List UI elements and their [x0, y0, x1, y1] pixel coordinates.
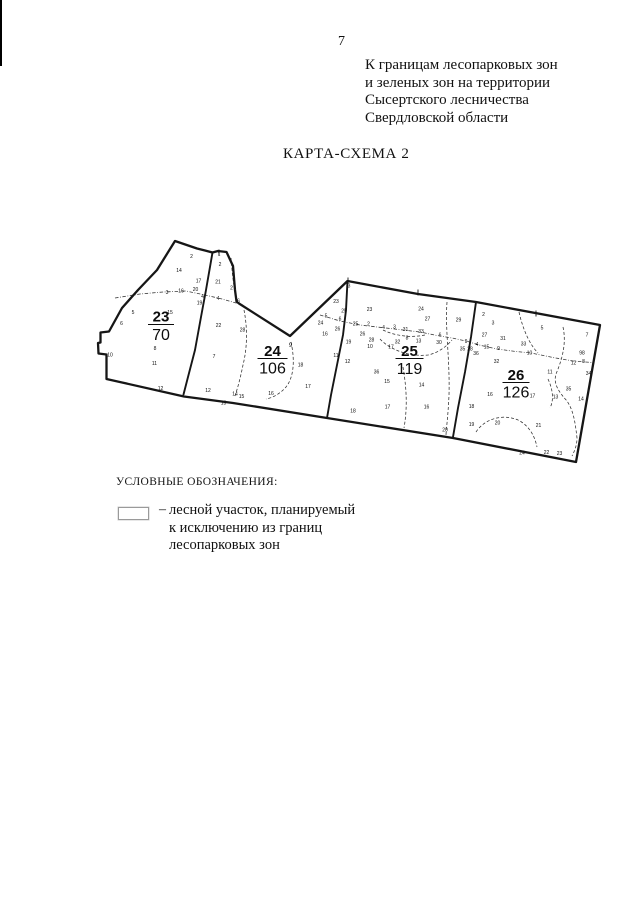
legend-dash: –: [159, 502, 166, 518]
parcel-number: 5: [325, 313, 328, 319]
parcel-number: 4: [201, 294, 204, 300]
parcel-number: 21: [536, 423, 542, 429]
parcel-number: 17: [196, 278, 202, 284]
parcel-number: 11: [547, 369, 552, 375]
parcel-number: 20: [495, 420, 501, 426]
parcel-number: 16: [487, 392, 493, 398]
parcel-number: 15: [384, 379, 390, 385]
parcel-number: 10: [367, 344, 373, 350]
parcel-number: 35: [460, 346, 466, 352]
parcel-number: 36: [473, 351, 479, 357]
parcel-number: 19: [197, 300, 203, 306]
parcel-number: 33: [418, 329, 424, 335]
parcel-dashed-line: [476, 417, 537, 447]
quarter-number-label: 25: [401, 343, 418, 360]
parcel-number: 8: [582, 359, 585, 365]
legend: УСЛОВНЫЕ ОБОЗНАЧЕНИЯ: – лесной участок, …: [116, 476, 416, 488]
parcel-number: 18: [469, 404, 475, 410]
parcel-number: 1: [218, 252, 221, 258]
quarter-number-label: 23: [153, 309, 170, 326]
parcel-number: 14: [232, 391, 238, 397]
parcel-number: 20: [442, 427, 448, 433]
parcel-number: 27: [425, 316, 431, 322]
parcel-number: 16: [178, 288, 184, 294]
parcel-number: 24: [418, 306, 424, 312]
map-scheme-figure: 2141731620155681011121221241946222871213…: [0, 0, 640, 905]
parcel-number: 13: [553, 394, 559, 400]
parcel-number: 16: [268, 391, 274, 397]
parcel-number: 28: [240, 327, 246, 333]
parcel-number: 7: [586, 332, 589, 338]
parcel-number: 32: [395, 339, 401, 345]
parcel-number: 35: [566, 386, 572, 392]
parcel-number: 5: [541, 325, 544, 331]
parcel-number: 4: [476, 342, 479, 348]
parcel-number: 23: [367, 307, 373, 313]
text-line: лесопарковых зон: [169, 537, 409, 555]
parcel-number: 6: [120, 321, 123, 327]
parcel-number: 13: [221, 400, 227, 406]
parcel-number: 12: [158, 386, 164, 392]
parcel-number: 2: [219, 262, 222, 268]
parcel-number: 2: [367, 321, 370, 327]
parcel-number: 31: [403, 327, 409, 333]
quarter-number-label: 24: [264, 343, 281, 360]
text-line: к исключению из границ: [169, 520, 409, 538]
parcel-number: 31: [500, 336, 506, 342]
parcel-number: 17: [385, 404, 391, 410]
parcel-number: 27: [482, 332, 488, 338]
parcel-number: 7: [213, 354, 216, 360]
parcel-number: 32: [494, 359, 500, 365]
quarter-boundary-line: [184, 253, 213, 395]
parcel-number: 12: [571, 360, 577, 366]
parcel-number: 8: [406, 335, 409, 341]
parcel-number: 98: [579, 350, 585, 356]
excluded-parcel-swatch: [118, 507, 149, 520]
parcel-number: 18: [298, 362, 304, 368]
parcel-number: 16: [424, 404, 430, 410]
quarter-number-label: 26: [508, 367, 525, 384]
parcel-number: 26: [360, 331, 366, 337]
parcel-number: 3: [492, 320, 495, 326]
parcel-number: 19: [346, 339, 352, 345]
quarter-area-label: 106: [259, 361, 286, 378]
parcel-number: 2: [230, 285, 233, 291]
parcel-number: 23: [333, 299, 339, 305]
parcel-number: 3: [166, 290, 169, 296]
parcel-number: 10: [527, 350, 533, 356]
parcel-number: 17: [388, 344, 394, 350]
parcel-number: 16: [322, 331, 328, 337]
parcel-dashed-line: [446, 302, 449, 436]
parcel-number: 24: [519, 450, 525, 456]
parcel-number: 11: [152, 361, 157, 367]
parcel-number: 26: [335, 326, 341, 332]
parcel-number: 33: [521, 341, 527, 347]
parcel-number: 6: [237, 298, 240, 304]
map-outline: [98, 241, 600, 462]
document-page: 7 К границам лесопарковых зони зеленых з…: [0, 0, 640, 905]
parcel-number: 25: [353, 321, 359, 327]
parcel-number: 24: [318, 320, 324, 326]
parcel-number: 14: [419, 382, 425, 388]
parcel-number: 23: [557, 451, 563, 457]
parcel-number: 19: [469, 422, 475, 428]
parcel-number: 4: [382, 325, 385, 331]
parcel-number: 8: [154, 346, 157, 352]
parcel-number: 15: [484, 344, 490, 350]
parcel-number: 29: [456, 317, 462, 323]
quarter-area-label: 119: [397, 361, 423, 378]
parcel-number: 17: [305, 384, 311, 390]
parcel-number: 20: [193, 287, 199, 293]
parcel-number: 6: [339, 316, 342, 322]
parcel-number: 22: [544, 450, 550, 456]
parcel-number: 22: [216, 323, 222, 329]
parcel-number: 36: [374, 369, 380, 375]
parcel-dashed-line: [235, 310, 247, 396]
parcel-number: 21: [215, 279, 221, 285]
parcel-number: 2: [190, 254, 193, 260]
parcel-number: 5: [132, 310, 135, 316]
parcel-number: 14: [578, 396, 584, 402]
parcel-number: 9: [465, 339, 468, 345]
parcel-number: 4: [217, 296, 220, 302]
parcel-number: 12: [205, 388, 211, 394]
parcel-number: 28: [369, 337, 375, 343]
parcel-number: 6: [439, 332, 442, 338]
parcel-number: 11: [333, 353, 338, 359]
parcel-number: 10: [107, 352, 113, 358]
parcel-number: 34: [586, 371, 592, 377]
parcel-number: 2: [482, 312, 485, 318]
quarter-area-label: 70: [152, 327, 170, 344]
parcel-number: 9: [497, 346, 500, 352]
parcel-number: 30: [436, 340, 442, 346]
parcel-number: 17: [530, 393, 536, 399]
parcel-number: 3: [348, 283, 351, 289]
text-line: лесной участок, планируемый: [169, 502, 409, 520]
parcel-number: 28: [467, 346, 473, 352]
parcel-number: 3: [393, 324, 396, 330]
parcel-number: 14: [176, 268, 182, 274]
parcel-number: 25: [341, 308, 347, 314]
legend-heading: УСЛОВНЫЕ ОБОЗНАЧЕНИЯ:: [116, 476, 416, 488]
quarter-area-label: 126: [503, 385, 530, 402]
parcel-number: 18: [350, 408, 356, 414]
legend-item-text: лесной участок, планируемыйк исключению …: [169, 502, 409, 555]
parcel-number: 12: [345, 359, 351, 365]
parcel-number: 15: [239, 394, 245, 400]
